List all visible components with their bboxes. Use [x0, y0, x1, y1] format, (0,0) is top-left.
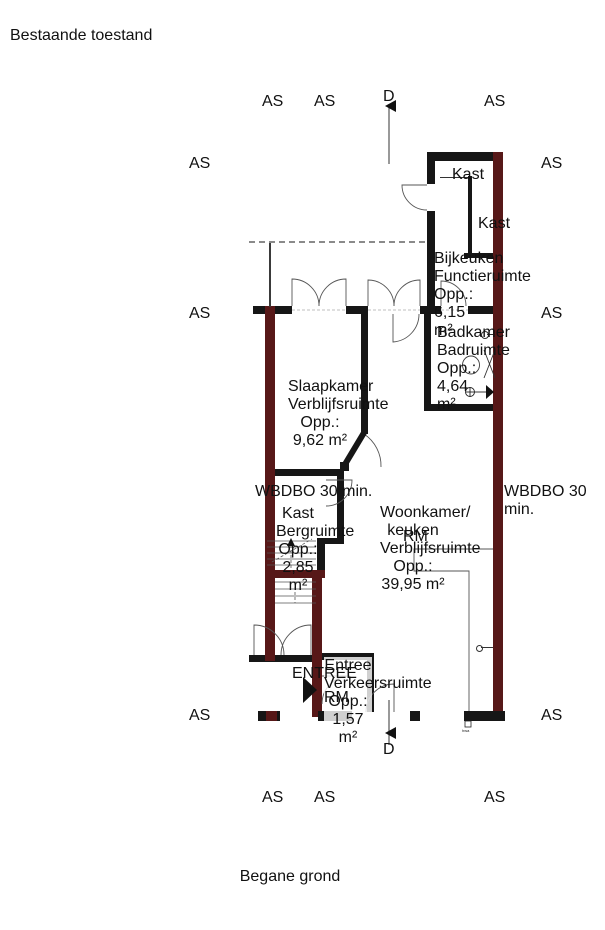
- door-arc: [364, 434, 381, 467]
- shower-valve: [486, 385, 494, 399]
- door-arc: [281, 625, 311, 655]
- section-mark-d: [385, 100, 396, 745]
- room-name: Badkamer: [437, 324, 487, 342]
- door-arc: [393, 314, 419, 342]
- smoke-detector-badge: RM: [403, 531, 414, 542]
- axis-marker: AS: [262, 93, 283, 111]
- axis-marker: AS: [484, 93, 505, 111]
- axis-marker: AS: [541, 707, 562, 725]
- room-area: Opp.: 39,95 m²: [380, 558, 446, 594]
- axis-marker: AS: [314, 789, 335, 807]
- room-area: Opp.: 2,85 m²: [276, 541, 320, 595]
- plan-linework: [0, 0, 605, 930]
- room-label-badkamer: Badkamer Badruimte Opp.: 4,64 m²: [437, 324, 487, 414]
- hwa-label: hwa: [462, 728, 469, 733]
- smoke-detector-badge: RM: [324, 693, 334, 703]
- room-function: Badruimte: [437, 342, 487, 360]
- axis-marker: AS: [189, 707, 210, 725]
- floorplan-page: Bestaande toestand Begane grond: [0, 0, 605, 930]
- room-name: Bijkeuken: [434, 250, 484, 268]
- axis-marker: AS: [262, 789, 283, 807]
- closet-label-top: Kast: [452, 166, 484, 184]
- axis-marker: AS: [484, 789, 505, 807]
- door-arc: [292, 279, 319, 306]
- section-label-top: D: [383, 88, 395, 106]
- room-function: Functieruimte: [434, 268, 484, 286]
- room-name: Slaapkamer: [288, 378, 352, 396]
- door-arc: [319, 279, 346, 306]
- axis-marker: AS: [189, 155, 210, 173]
- door-arc: [254, 625, 284, 655]
- section-arrow-icon: [385, 727, 396, 739]
- room-function: Verblijfsruimte: [288, 396, 352, 414]
- room-area: Opp.: 4,64 m²: [437, 360, 487, 414]
- closet-label-side: Kast: [478, 215, 510, 233]
- axis-marker: AS: [541, 305, 562, 323]
- door-arc: [368, 280, 394, 306]
- fire-rating-left: WBDBO 30 min.: [255, 483, 372, 547]
- section-label-bottom: D: [383, 741, 395, 759]
- fire-rating-right: WBDBO 30 min.: [504, 483, 605, 547]
- room-label-slaapkamer: Slaapkamer Verblijfsruimte Opp.: 9,62 m²: [288, 378, 352, 450]
- axis-marker: AS: [189, 305, 210, 323]
- wall-node: [340, 462, 349, 471]
- door-arc: [402, 185, 427, 210]
- axis-marker: AS: [314, 93, 335, 111]
- room-label-woonkamer: Woonkamer/ keuken Verblijfsruimte Opp.: …: [380, 504, 446, 594]
- axis-marker: AS: [541, 155, 562, 173]
- door-arc: [394, 280, 420, 306]
- room-area: Opp.: 9,62 m²: [288, 414, 352, 450]
- hwa-symbol: [465, 721, 471, 727]
